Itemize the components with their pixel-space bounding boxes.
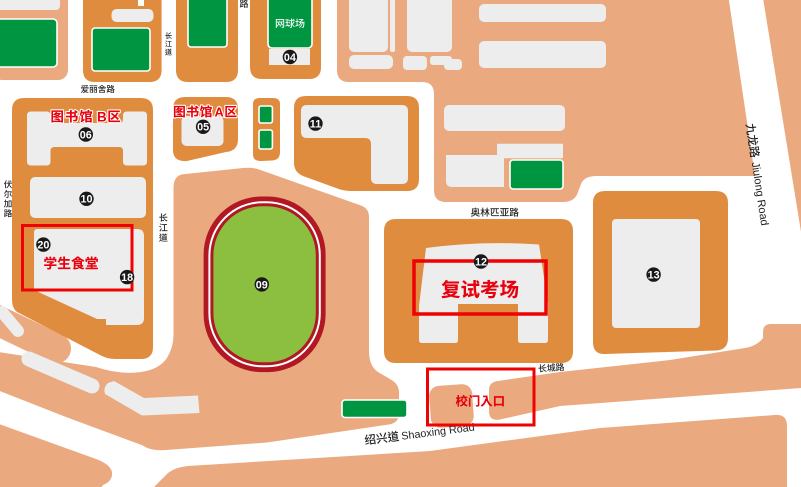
svg-text:18: 18 [121,272,133,284]
svg-text:10: 10 [80,194,92,206]
svg-text:11: 11 [310,119,321,131]
svg-text:13: 13 [648,270,660,282]
svg-text:04: 04 [284,52,296,64]
svg-text:B: B [97,109,107,124]
svg-text:05: 05 [197,122,209,134]
svg-text:06: 06 [80,129,92,141]
svg-text:20: 20 [37,240,49,252]
svg-text:09: 09 [256,279,268,291]
svg-text:12: 12 [475,256,487,268]
svg-text:A: A [215,104,224,119]
svg-text:Jiulong Road: Jiulong Road [749,161,770,226]
